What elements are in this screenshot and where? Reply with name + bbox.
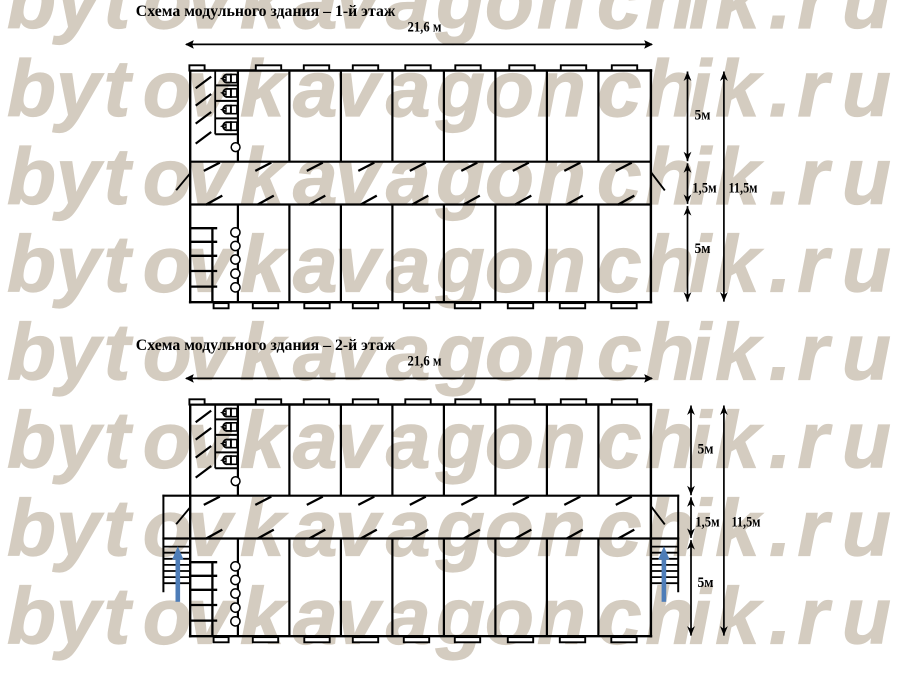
svg-text:5м: 5м	[695, 241, 711, 257]
svg-text:5м: 5м	[695, 107, 711, 123]
svg-text:bytovkavagonchik.ru: bytovkavagonchik.ru	[7, 44, 891, 133]
svg-text:21,6 м: 21,6 м	[408, 19, 442, 35]
svg-text:Схема модульного здания – 1-й: Схема модульного здания – 1-й этаж	[136, 3, 396, 20]
svg-text:1,5м: 1,5м	[692, 180, 717, 196]
svg-text:bytovkavagonchik.ru: bytovkavagonchik.ru	[7, 572, 891, 661]
svg-text:5м: 5м	[698, 441, 714, 457]
svg-text:1,5м: 1,5м	[695, 514, 720, 530]
svg-text:bytovkavagonchik.ru: bytovkavagonchik.ru	[7, 396, 891, 485]
svg-text:bytovkavagonchik.ru: bytovkavagonchik.ru	[7, 132, 891, 221]
svg-text:Схема модульного здания – 2-й: Схема модульного здания – 2-й этаж	[136, 337, 396, 354]
svg-text:5м: 5м	[698, 575, 714, 591]
svg-text:11,5м: 11,5м	[729, 180, 758, 196]
svg-text:bytovkavagonchik.ru: bytovkavagonchik.ru	[7, 220, 891, 309]
svg-text:21,6 м: 21,6 м	[408, 353, 442, 369]
svg-text:11,5м: 11,5м	[732, 514, 761, 530]
